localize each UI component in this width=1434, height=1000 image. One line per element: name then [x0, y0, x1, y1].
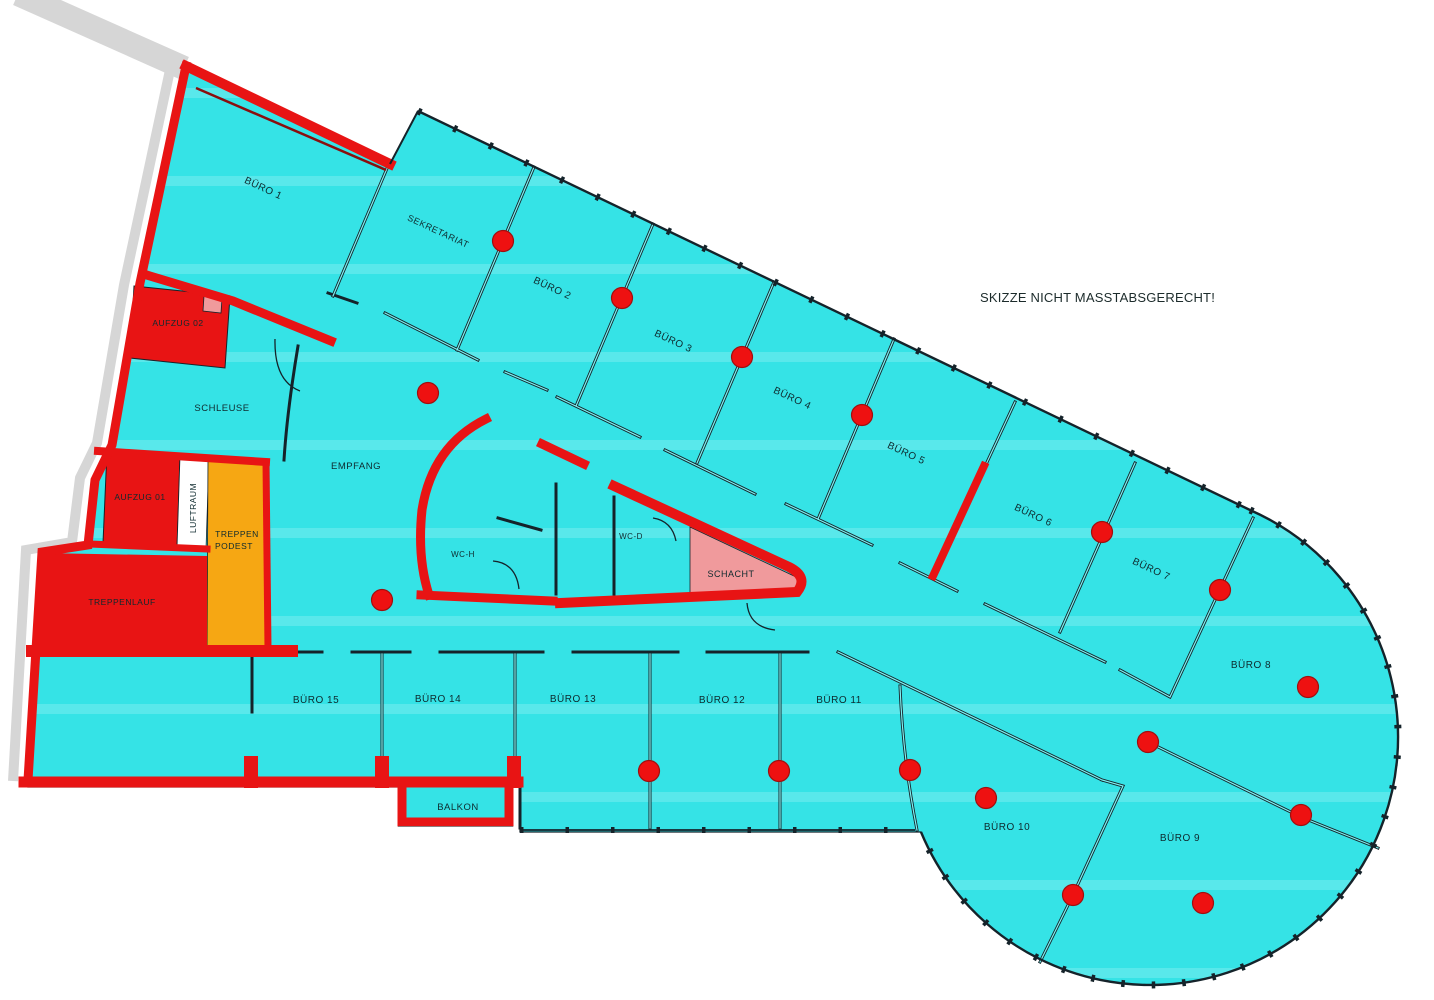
marker-dot — [418, 383, 439, 404]
marker-dot — [1210, 580, 1231, 601]
marker-dot — [493, 231, 514, 252]
floor-plan-drawing: BÜRO 1SEKRETARIATBÜRO 2BÜRO 3BÜRO 4BÜRO … — [0, 0, 1434, 1000]
room-label-aufzug-01: AUFZUG 01 — [114, 492, 165, 502]
room-label-wc-d: WC-D — [619, 532, 643, 541]
marker-dot — [1138, 732, 1159, 753]
marker-dot — [732, 347, 753, 368]
room-label-buero-15: BÜRO 15 — [293, 694, 339, 706]
marker-dot — [1298, 677, 1319, 698]
room-label-buero-8: BÜRO 8 — [1231, 659, 1271, 671]
room-label-buero-10: BÜRO 10 — [984, 821, 1030, 833]
marker-dot — [372, 590, 393, 611]
room-label-aufzug-02: AUFZUG 02 — [152, 318, 203, 328]
treppenpodest-box — [207, 458, 267, 649]
room-label-treppenlauf: TREPPENLAUF — [88, 597, 155, 607]
room-label-schleuse: SCHLEUSE — [194, 403, 249, 414]
marker-dot — [612, 288, 633, 309]
marker-dot — [976, 788, 997, 809]
room-label-wc-h: WC-H — [451, 550, 475, 559]
marker-dot — [1063, 885, 1084, 906]
room-label-buero-9: BÜRO 9 — [1160, 832, 1200, 844]
room-label-balkon: BALKON — [437, 802, 479, 813]
room-label-treppen: TREPPEN — [215, 529, 259, 539]
marker-dot — [1092, 522, 1113, 543]
marker-dot — [1291, 805, 1312, 826]
marker-dot — [769, 761, 790, 782]
room-label-schacht: SCHACHT — [707, 569, 754, 579]
room-label-buero-12: BÜRO 12 — [699, 694, 745, 706]
room-label-luftraum: LUFTRAUM — [188, 483, 198, 533]
marker-dot — [1193, 893, 1214, 914]
room-label-empfang: EMPFANG — [331, 461, 381, 472]
room-label-buero-13: BÜRO 13 — [550, 693, 596, 705]
floor-plan-page: BÜRO 1SEKRETARIATBÜRO 2BÜRO 3BÜRO 4BÜRO … — [0, 0, 1434, 1000]
room-label-podest: PODEST — [215, 541, 253, 551]
marker-dot — [639, 761, 660, 782]
room-label-buero-14: BÜRO 14 — [415, 693, 461, 705]
marker-dot — [900, 760, 921, 781]
marker-dot — [852, 405, 873, 426]
room-label-buero-11: BÜRO 11 — [816, 694, 862, 706]
disclaimer-note: SKIZZE NICHT MASSTABSGERECHT! — [980, 290, 1215, 305]
